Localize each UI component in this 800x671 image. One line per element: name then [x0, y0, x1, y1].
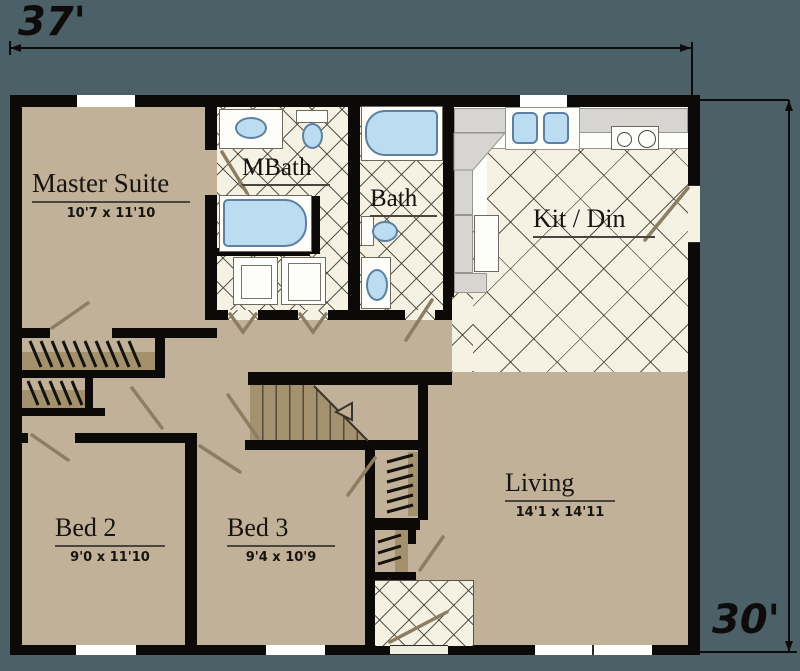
- hallway: [205, 320, 452, 372]
- wall: [245, 440, 428, 450]
- wall: [348, 107, 360, 312]
- bathtub-icon: [365, 110, 438, 156]
- door-opening: [228, 310, 258, 320]
- stove-burner: [638, 130, 656, 148]
- door-opening: [298, 310, 328, 320]
- wall: [205, 107, 217, 312]
- wall: [368, 572, 416, 580]
- stove-burner: [617, 132, 632, 147]
- wall: [443, 107, 454, 297]
- height-dimension-label: 30': [712, 600, 780, 640]
- label-bed2: Bed 2 9'0 x 11'10: [55, 515, 165, 564]
- wall: [10, 328, 217, 338]
- room-dims: 10'7 x 11'10: [32, 207, 190, 220]
- linen-closet-shelf: [408, 452, 418, 516]
- label-living: Living 14'1 x 14'11: [505, 470, 615, 519]
- door-opening: [405, 310, 435, 320]
- kitchen-counter: [454, 148, 473, 215]
- kitchen-counter: [454, 215, 473, 273]
- kitchen-counter-edge: [473, 148, 487, 215]
- width-dimension-label: 37': [18, 2, 86, 42]
- bed2-closet-shelf: [22, 390, 88, 408]
- wall: [155, 338, 165, 378]
- label-mbath: MBath: [242, 155, 330, 186]
- kitchen-counter: [454, 273, 487, 293]
- kitchen-sink-icon: [543, 112, 569, 144]
- label-bath: Bath: [370, 186, 437, 217]
- window: [535, 645, 652, 655]
- room-name: Bath: [370, 186, 437, 217]
- door-opening: [50, 328, 112, 338]
- window: [77, 95, 135, 107]
- room-name: Kit / Din: [533, 206, 655, 238]
- window: [76, 645, 136, 655]
- arrow-icon: [785, 100, 793, 111]
- room-name: Living: [505, 470, 615, 502]
- arrow-icon: [785, 641, 793, 652]
- wall: [85, 378, 93, 410]
- kitchen-sink-icon: [512, 112, 538, 144]
- wall: [185, 443, 197, 645]
- wall: [408, 530, 416, 544]
- wall: [10, 370, 165, 378]
- fridge-icon: [474, 215, 499, 272]
- room-dims: 14'1 x 14'11: [505, 506, 615, 519]
- door-opening: [205, 150, 217, 195]
- sink-icon: [366, 269, 388, 301]
- wall: [365, 443, 375, 645]
- hallway: [390, 385, 418, 442]
- wall: [368, 519, 420, 530]
- toilet-tank-icon: [296, 110, 328, 123]
- vanity-basin: [288, 263, 321, 301]
- label-kit-din: Kit / Din: [533, 206, 655, 238]
- back-door-opening: [688, 185, 700, 243]
- room-name: Bed 3: [227, 515, 335, 547]
- room-dims: 9'4 x 10'9: [227, 551, 335, 564]
- room-kit-din: [473, 148, 688, 373]
- floor-plan: 37' 30' Master Suite 10'7 x 11'10 MBath …: [0, 0, 800, 671]
- door-opening: [197, 433, 245, 443]
- room-name: Master Suite: [32, 170, 190, 203]
- master-closet-shelf: [22, 352, 155, 370]
- room-name: Bed 2: [55, 515, 165, 547]
- toilet-icon: [302, 123, 323, 149]
- toilet-icon: [372, 221, 398, 242]
- kitchen-floor-patch: [452, 293, 473, 373]
- entry-closet-shelf: [395, 530, 408, 572]
- room-dims: 9'0 x 11'10: [55, 551, 165, 564]
- window: [266, 645, 325, 655]
- bathtub-icon: [223, 199, 307, 247]
- front-door-opening: [390, 645, 448, 655]
- arrow-icon: [10, 44, 21, 52]
- label-bed3: Bed 3 9'4 x 10'9: [227, 515, 335, 564]
- label-master-suite: Master Suite 10'7 x 11'10: [32, 170, 190, 220]
- room-name: MBath: [242, 155, 330, 186]
- door-opening: [28, 433, 75, 443]
- sink-icon: [235, 117, 267, 139]
- vanity-basin: [241, 265, 272, 299]
- window: [520, 95, 567, 107]
- arrow-icon: [680, 44, 691, 52]
- entry-floor: [375, 580, 474, 646]
